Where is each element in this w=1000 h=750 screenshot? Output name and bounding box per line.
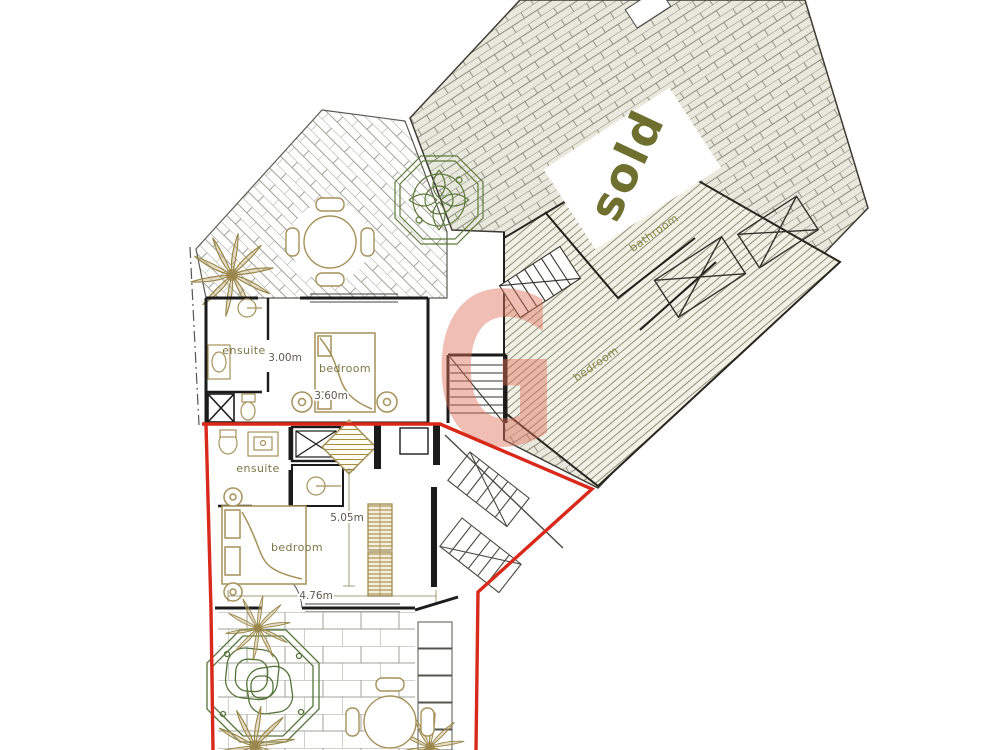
upper-bedroom-label: bedroom (319, 362, 371, 375)
lower-room-width-dim: 4.76m (299, 590, 333, 602)
upper-bed-width-dim: 3.60m (314, 390, 348, 402)
floor-plan-page: sold bathroom bedroom (0, 0, 1000, 750)
upper-room-width-dim: 3.00m (268, 352, 302, 364)
floor-plan: sold bathroom bedroom (0, 0, 1000, 750)
lower-ensuite-label: ensuite (236, 462, 279, 475)
upper-ensuite-label: ensuite (222, 344, 265, 357)
wardrobe-icon (368, 504, 392, 596)
lower-ensuite-fixtures (219, 430, 278, 456)
toilet-icon (242, 394, 255, 402)
lower-room-depth-dim: 5.05m (330, 512, 364, 524)
watermark-letter: G (434, 250, 558, 494)
lower-bedroom-label: bedroom (271, 541, 323, 554)
